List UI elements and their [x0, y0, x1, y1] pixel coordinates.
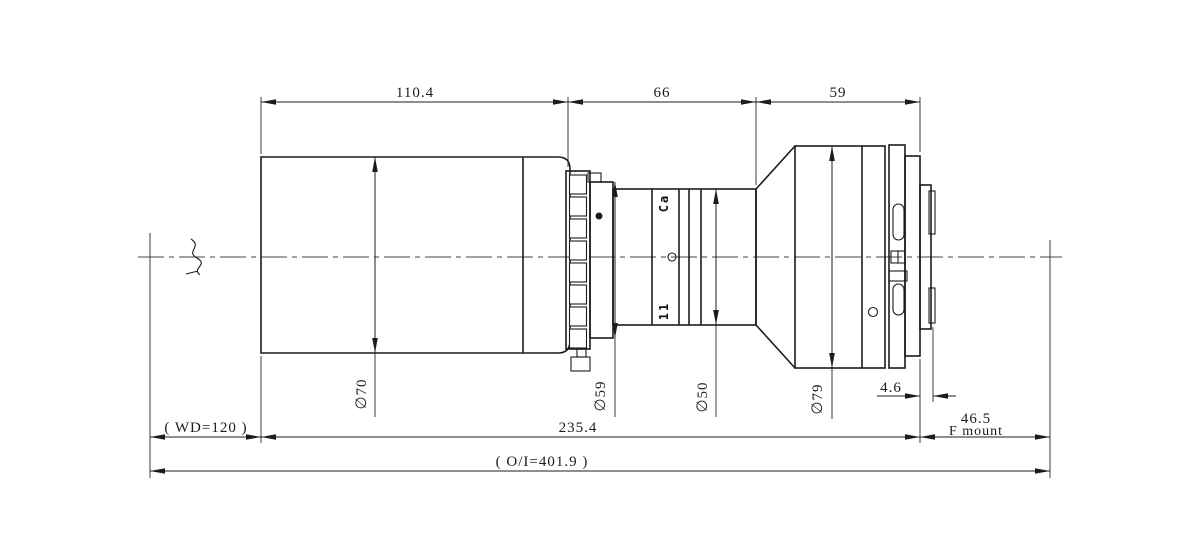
dim-dia-front-text: ∅70 [354, 378, 370, 409]
lens-technical-drawing: Ca 11 [0, 0, 1200, 540]
dim-mid-length-text: 66 [654, 85, 671, 101]
dim-dia-front: ∅70 [354, 157, 375, 417]
drawing-canvas: Ca 11 [0, 0, 1200, 540]
dim-total-length: 235.4 [261, 420, 920, 437]
rear-hole [869, 308, 878, 317]
dim-working-distance: ( WD=120 ) [150, 420, 261, 437]
dim-rear-length-text: 59 [830, 85, 847, 101]
dim-dia-mid-text: ∅50 [695, 381, 711, 412]
dim-front-length-text: 110.4 [396, 85, 434, 101]
dim-front-length: 110.4 [261, 85, 568, 102]
dim-flange-distance: 46.5 F mount [920, 411, 1050, 439]
dim-overall-oi-text: ( O/I=401.9 ) [496, 454, 589, 470]
dim-dia-mid: ∅50 [695, 189, 716, 417]
lock-screw [571, 349, 590, 371]
dim-total-length-text: 235.4 [559, 420, 598, 436]
extension-lines [150, 97, 1050, 478]
dim-dia-rear: ∅79 [810, 146, 832, 419]
dim-bayonet-offset: 4.6 [877, 380, 956, 396]
dim-rear-length: 59 [756, 85, 920, 102]
coupling-slot-bottom [893, 284, 904, 315]
bayonet-tab-top [929, 191, 935, 234]
barrel-marking-upper: Ca [657, 194, 671, 212]
knurled-ring [566, 171, 590, 349]
dim-working-distance-text: ( WD=120 ) [164, 420, 247, 436]
dim-flange-label-text: F mount [949, 424, 1003, 439]
index-dot [596, 213, 603, 220]
bayonet-tab-bottom [929, 288, 935, 323]
dim-overall-oi: ( O/I=401.9 ) [150, 454, 1050, 471]
dim-mid-length: 66 [568, 85, 756, 102]
dim-dia-clamp-text: ∅59 [593, 380, 609, 411]
dim-bayonet-offset-text: 4.6 [880, 380, 902, 396]
f-mount-flange [905, 156, 920, 356]
barrel-marking-lower: 11 [657, 302, 671, 320]
dim-dia-rear-text: ∅79 [810, 383, 826, 414]
front-barrel [261, 157, 570, 353]
coupling-slot-top [893, 204, 904, 240]
